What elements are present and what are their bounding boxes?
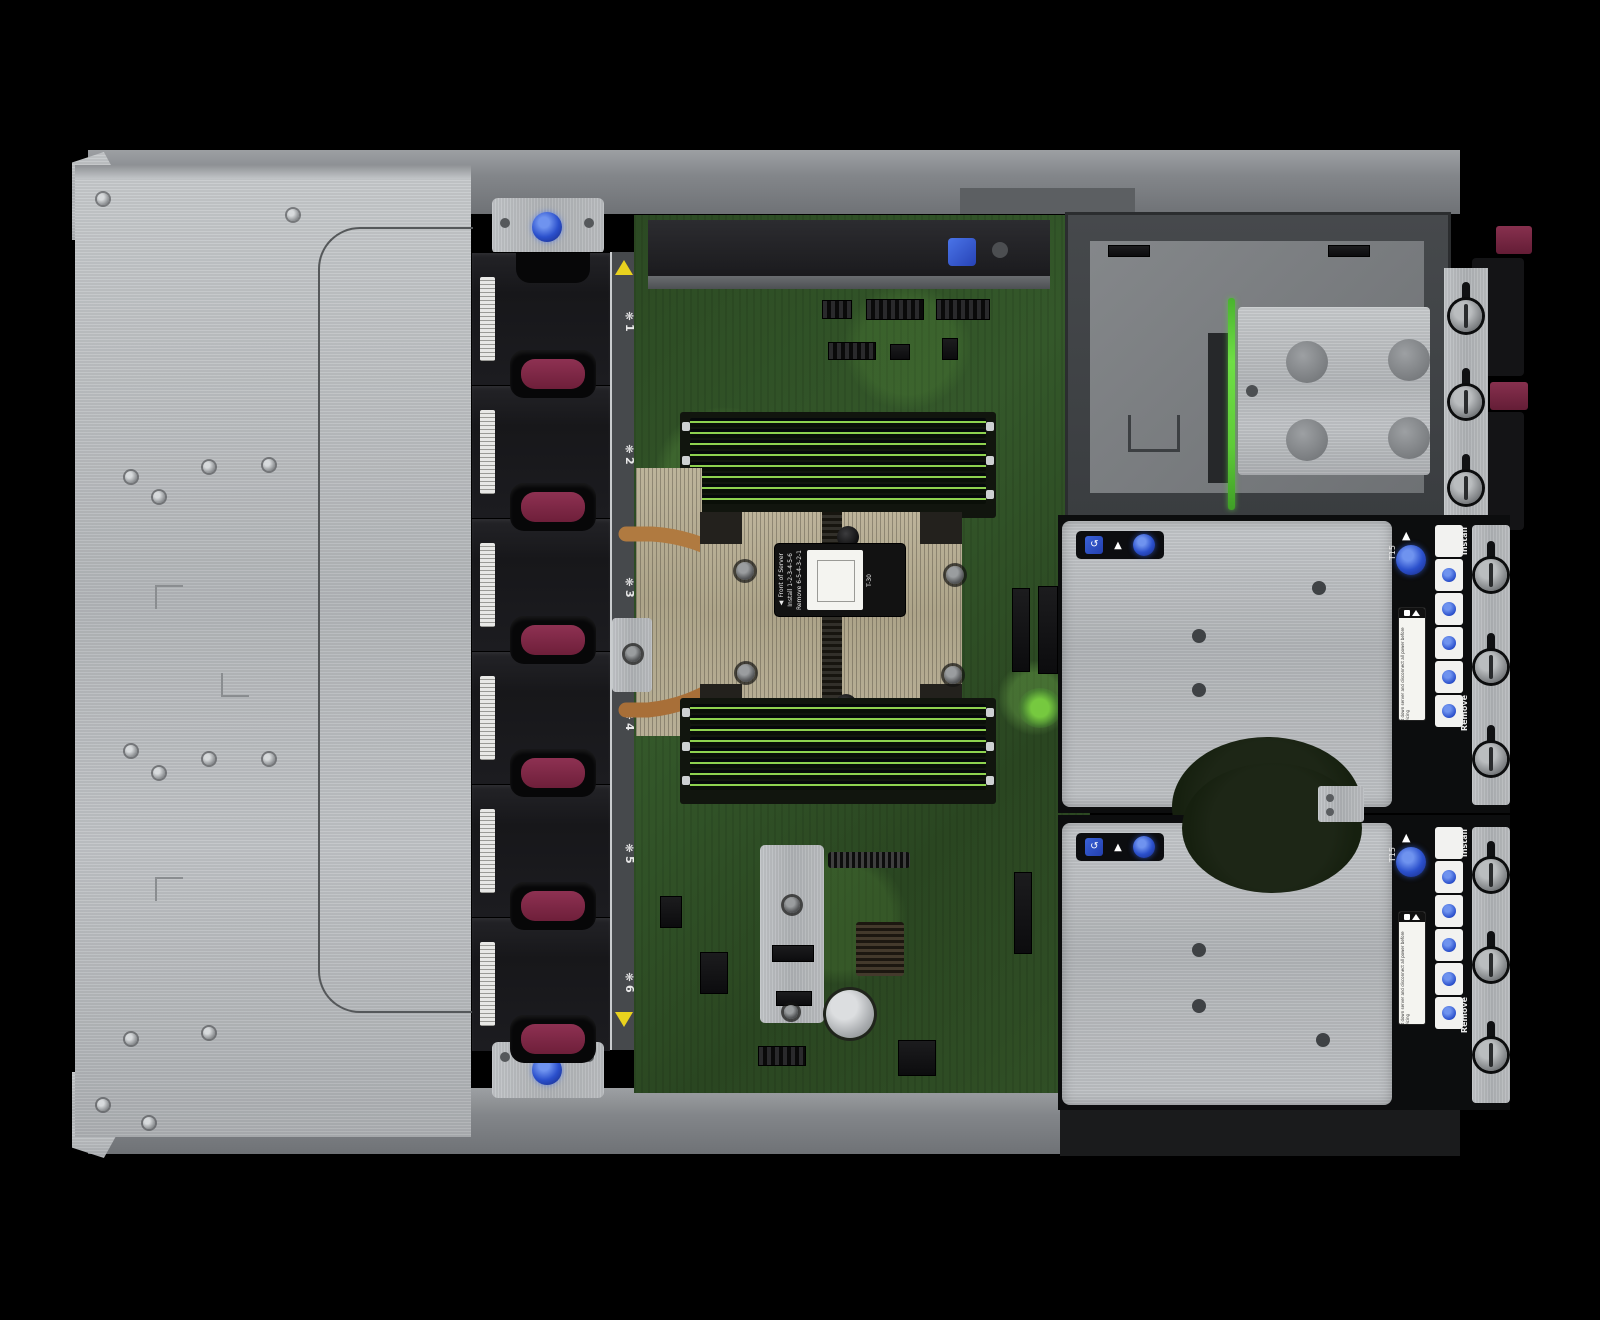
rivet <box>153 767 165 779</box>
riser-2-pictogram-strip <box>1432 825 1466 1103</box>
screw-position-diagram <box>807 550 863 610</box>
bend-mark <box>155 877 183 901</box>
pictogram-turn <box>1435 963 1463 995</box>
fan-bay-label-5: ❋5 <box>612 828 636 878</box>
dimm-slot <box>690 770 986 779</box>
bracket-screw <box>500 1052 510 1062</box>
rivet <box>203 461 215 473</box>
bracket-connector <box>772 945 814 962</box>
tray-screw <box>1246 385 1258 397</box>
dimm-latch <box>986 422 994 431</box>
dimm-latch <box>986 490 994 499</box>
chassis-top-recess <box>960 188 1135 214</box>
signal-connector <box>942 338 958 360</box>
power-connector <box>866 299 924 320</box>
riser-2-thumbscrew <box>1396 847 1426 877</box>
riser-2-latch-label: ↺ ▲ <box>1076 833 1164 861</box>
caution-icons <box>1399 608 1425 618</box>
bend-mark <box>155 585 183 609</box>
fan-handle-recess <box>510 616 596 664</box>
rivet <box>263 753 275 765</box>
heatsink-notch <box>920 512 962 544</box>
fan-handle-recess <box>510 350 596 398</box>
warning-triangle-icon <box>615 260 633 275</box>
fan-module-5 <box>472 784 610 918</box>
rear-keyhole-bracket <box>1444 268 1488 518</box>
pictogram-screw <box>1435 627 1463 659</box>
keyhole-slot <box>1474 725 1508 781</box>
psu-release-tab <box>1490 382 1528 410</box>
riser-1-label-column: ▲ T15 Shut down server and disconnect al… <box>1394 515 1510 813</box>
bend-mark <box>221 673 249 697</box>
cpu-heatsink: ▲ Front of Server Install 1-2-3-4-5-6 Re… <box>700 512 962 716</box>
coin-battery <box>826 990 874 1038</box>
fan-part-label <box>480 942 495 1026</box>
rivet <box>287 209 299 221</box>
cage-slot <box>1328 245 1370 257</box>
tray-hole <box>1388 417 1430 459</box>
connector-hole <box>1326 794 1334 802</box>
caution-icons <box>1399 912 1425 922</box>
inter-riser-connector <box>1318 786 1364 822</box>
riser-1-plate <box>1062 521 1392 807</box>
heatsink-screw <box>736 562 754 580</box>
fan-handle <box>521 758 585 788</box>
riser-1-keyhole-plate <box>1472 525 1510 805</box>
tray-hole <box>1286 341 1328 383</box>
keyhole-slot <box>1474 541 1508 597</box>
drive-tray <box>1238 307 1430 475</box>
riser-slot <box>1038 586 1058 674</box>
power-connector <box>822 300 852 319</box>
baffle-ledge <box>648 276 1050 289</box>
rivet <box>203 753 215 765</box>
dimm-latch <box>986 742 994 751</box>
riser-2-keyhole-plate <box>1472 827 1510 1103</box>
riser-2-latch-thumbscrew <box>1133 836 1155 858</box>
fan-handle <box>521 1024 585 1054</box>
fan-module-4 <box>472 651 610 785</box>
rivet <box>203 1027 215 1039</box>
coiled-ribbon <box>828 852 910 868</box>
touchpoint-hand-icon: ↺ <box>1085 838 1103 856</box>
tray-hole <box>1286 419 1328 461</box>
fan-part-label <box>480 809 495 893</box>
retention-bracket <box>760 845 824 1023</box>
dimm-slot <box>690 759 986 768</box>
signal-connector <box>890 344 910 360</box>
pcie-slot-bracket <box>648 220 1050 278</box>
fan-top-notch <box>516 253 590 283</box>
riser-2-remove-label: Remove <box>1460 997 1469 1033</box>
rivet <box>97 1099 109 1111</box>
fan-part-label <box>480 410 495 494</box>
dimm-latch <box>682 422 690 431</box>
remove-sequence-label: Remove 6-5-4-3-2-1 <box>796 550 803 610</box>
signal-connector <box>828 342 876 360</box>
pictogram-seat <box>1435 997 1463 1029</box>
triangle-icon: ▲ <box>1402 831 1410 844</box>
cover-panel-outline <box>318 227 473 1013</box>
plate-standoff <box>1192 999 1206 1013</box>
keyhole-slot <box>1474 931 1508 987</box>
plate-standoff <box>1192 943 1206 957</box>
plate-standoff <box>1312 581 1326 595</box>
heatsink-screw <box>944 666 962 684</box>
heatsink-instruction-label: ▲ Front of Server Install 1-2-3-4-5-6 Re… <box>774 543 906 617</box>
riser-2-install-label: Install <box>1460 829 1469 857</box>
warning-triangle-icon <box>615 1012 633 1027</box>
riser-1-torx-label: T15 <box>1388 545 1397 560</box>
fan-bay-label-1: ❋1 <box>612 296 636 346</box>
latch-screw <box>625 646 641 662</box>
bracket-screw <box>500 218 510 228</box>
dimm-slot <box>690 704 986 713</box>
plate-standoff <box>1192 629 1206 643</box>
riser-1-caution-label: Shut down server and disconnect all powe… <box>1398 607 1426 721</box>
dimm-latch <box>986 776 994 785</box>
rivet <box>153 491 165 503</box>
server-interior-photo: ❋1 ❋2 ❋3 ❋4 ❋5 ❋6 <box>0 0 1600 1320</box>
pictogram-screw <box>1435 861 1463 893</box>
keyhole-slot <box>1474 1021 1508 1077</box>
dimm-bank-b <box>680 698 996 804</box>
fan-part-label <box>480 543 495 627</box>
keyhole-slot <box>1474 633 1508 689</box>
plate-standoff <box>1192 683 1206 697</box>
pictogram-pull-handle <box>1435 525 1463 557</box>
fan-cage-latch-block <box>612 618 652 692</box>
rivet <box>125 745 137 757</box>
fan-part-label <box>480 277 495 361</box>
chipset-heatsink <box>856 922 904 976</box>
asic-chip <box>898 1040 936 1076</box>
drive-bay-cover-plate <box>75 165 471 1137</box>
dimm-latch <box>682 456 690 465</box>
fan-module-1 <box>472 252 610 386</box>
plate-standoff <box>1316 1033 1330 1047</box>
keyhole-slot <box>1474 841 1508 897</box>
front-io-connector <box>758 1046 806 1066</box>
rivet <box>143 1117 155 1129</box>
riser-1-pictogram-strip <box>1432 523 1466 805</box>
fan-module-6 <box>472 917 610 1052</box>
pictogram-screw <box>1435 559 1463 591</box>
dimm-latch <box>682 776 690 785</box>
pictogram-pull-handle <box>1435 827 1463 859</box>
bracket-screw <box>784 897 800 913</box>
fan-module-3 <box>472 518 610 652</box>
diagram-outline <box>817 560 855 602</box>
riser-2-label-column: ▲ T15 Shut down server and disconnect al… <box>1394 815 1510 1110</box>
riser-1-thumbscrew <box>1396 545 1426 575</box>
fan-handle-recess <box>510 483 596 531</box>
dimm-slot <box>690 440 986 449</box>
fan-cage-thumbscrew-top <box>532 212 562 242</box>
bracket-connector <box>776 991 812 1006</box>
pictogram-seat <box>1435 695 1463 727</box>
dimm-slot <box>690 737 986 746</box>
fan-handle-recess <box>510 1015 596 1063</box>
fan-handle-recess <box>510 749 596 797</box>
dimm-slot <box>690 781 986 790</box>
dimm-latch <box>986 456 994 465</box>
dimm-latch <box>682 708 690 717</box>
front-of-server-label: ▲ Front of Server <box>778 553 785 606</box>
cage-cutout <box>1128 415 1180 452</box>
keyhole-slot <box>1449 282 1483 338</box>
front-arrow-icon: ▲ <box>778 600 785 607</box>
led-glow <box>1018 688 1062 728</box>
dimm-slot <box>690 429 986 438</box>
triangle-icon: ▲ <box>1114 540 1122 551</box>
riser-1-remove-label: Remove <box>1460 695 1469 731</box>
heatsink-screw <box>737 664 755 682</box>
fan-bay-label-6: ❋6 <box>612 957 636 1007</box>
dimm-latch <box>682 742 690 751</box>
pictogram-screw <box>1435 929 1463 961</box>
riser-cage-2: ↺ ▲ ▲ T15 Shut down server and disconnec… <box>1058 815 1510 1110</box>
riser-slot <box>1014 872 1032 954</box>
riser-2-plate <box>1062 823 1392 1105</box>
media-cage <box>1065 212 1451 521</box>
fan-handle <box>521 891 585 921</box>
cage-slot <box>1108 245 1150 257</box>
bracket-screw <box>784 1005 798 1019</box>
keyhole-slot <box>1449 454 1483 510</box>
fan-handle <box>521 492 585 522</box>
install-sequence-label: Install 1-2-3-4-5-6 <box>787 553 794 607</box>
riser-slot <box>1012 588 1030 672</box>
rivet <box>97 193 109 205</box>
green-pcb-edge <box>1228 298 1235 510</box>
fan-part-label <box>480 676 495 760</box>
keyhole-slot <box>1449 368 1483 424</box>
cover-plate-lip <box>75 165 471 179</box>
riser-1-install-label: Install <box>1460 527 1469 555</box>
fan-module-2 <box>472 385 610 519</box>
heatsink-screw <box>946 566 964 584</box>
dimm-slot <box>690 748 986 757</box>
dimm-slot <box>690 451 986 460</box>
power-connector <box>936 299 990 320</box>
fan-handle <box>521 359 585 389</box>
triangle-icon: ▲ <box>1402 529 1410 542</box>
psu-release-tab <box>1496 226 1532 254</box>
rivet <box>125 1033 137 1045</box>
fan-handle-recess <box>510 882 596 930</box>
dimm-slot <box>690 715 986 724</box>
pictogram-turn <box>1435 593 1463 625</box>
riser-2-cutout <box>1182 763 1362 893</box>
triangle-icon: ▲ <box>1114 842 1122 853</box>
tray-hole <box>1388 339 1430 381</box>
pictogram-turn <box>1435 661 1463 693</box>
rivet <box>125 471 137 483</box>
fan-cage-bracket-top <box>492 198 604 254</box>
riser-2-torx-label: T15 <box>1388 847 1397 862</box>
board-connector <box>660 896 682 928</box>
rivet <box>263 459 275 471</box>
heatsink-notch <box>700 512 742 544</box>
blue-release-latch <box>948 238 976 266</box>
bracket-screw <box>584 218 594 228</box>
riser-1-latch-label: ↺ ▲ <box>1076 531 1164 559</box>
touchpoint-hand-icon: ↺ <box>1085 536 1103 554</box>
riser-2-caution-label: Shut down server and disconnect all powe… <box>1398 911 1426 1025</box>
fan-handle <box>521 625 585 655</box>
torx-size-label: T-30 <box>866 574 873 587</box>
board-connector <box>700 952 728 994</box>
riser-1-latch-thumbscrew <box>1133 534 1155 556</box>
pictogram-turn <box>1435 895 1463 927</box>
connector-hole <box>1326 808 1334 816</box>
bracket-screw <box>992 242 1008 258</box>
dimm-latch <box>986 708 994 717</box>
dimm-slot <box>690 418 986 427</box>
dimm-slot <box>690 726 986 735</box>
